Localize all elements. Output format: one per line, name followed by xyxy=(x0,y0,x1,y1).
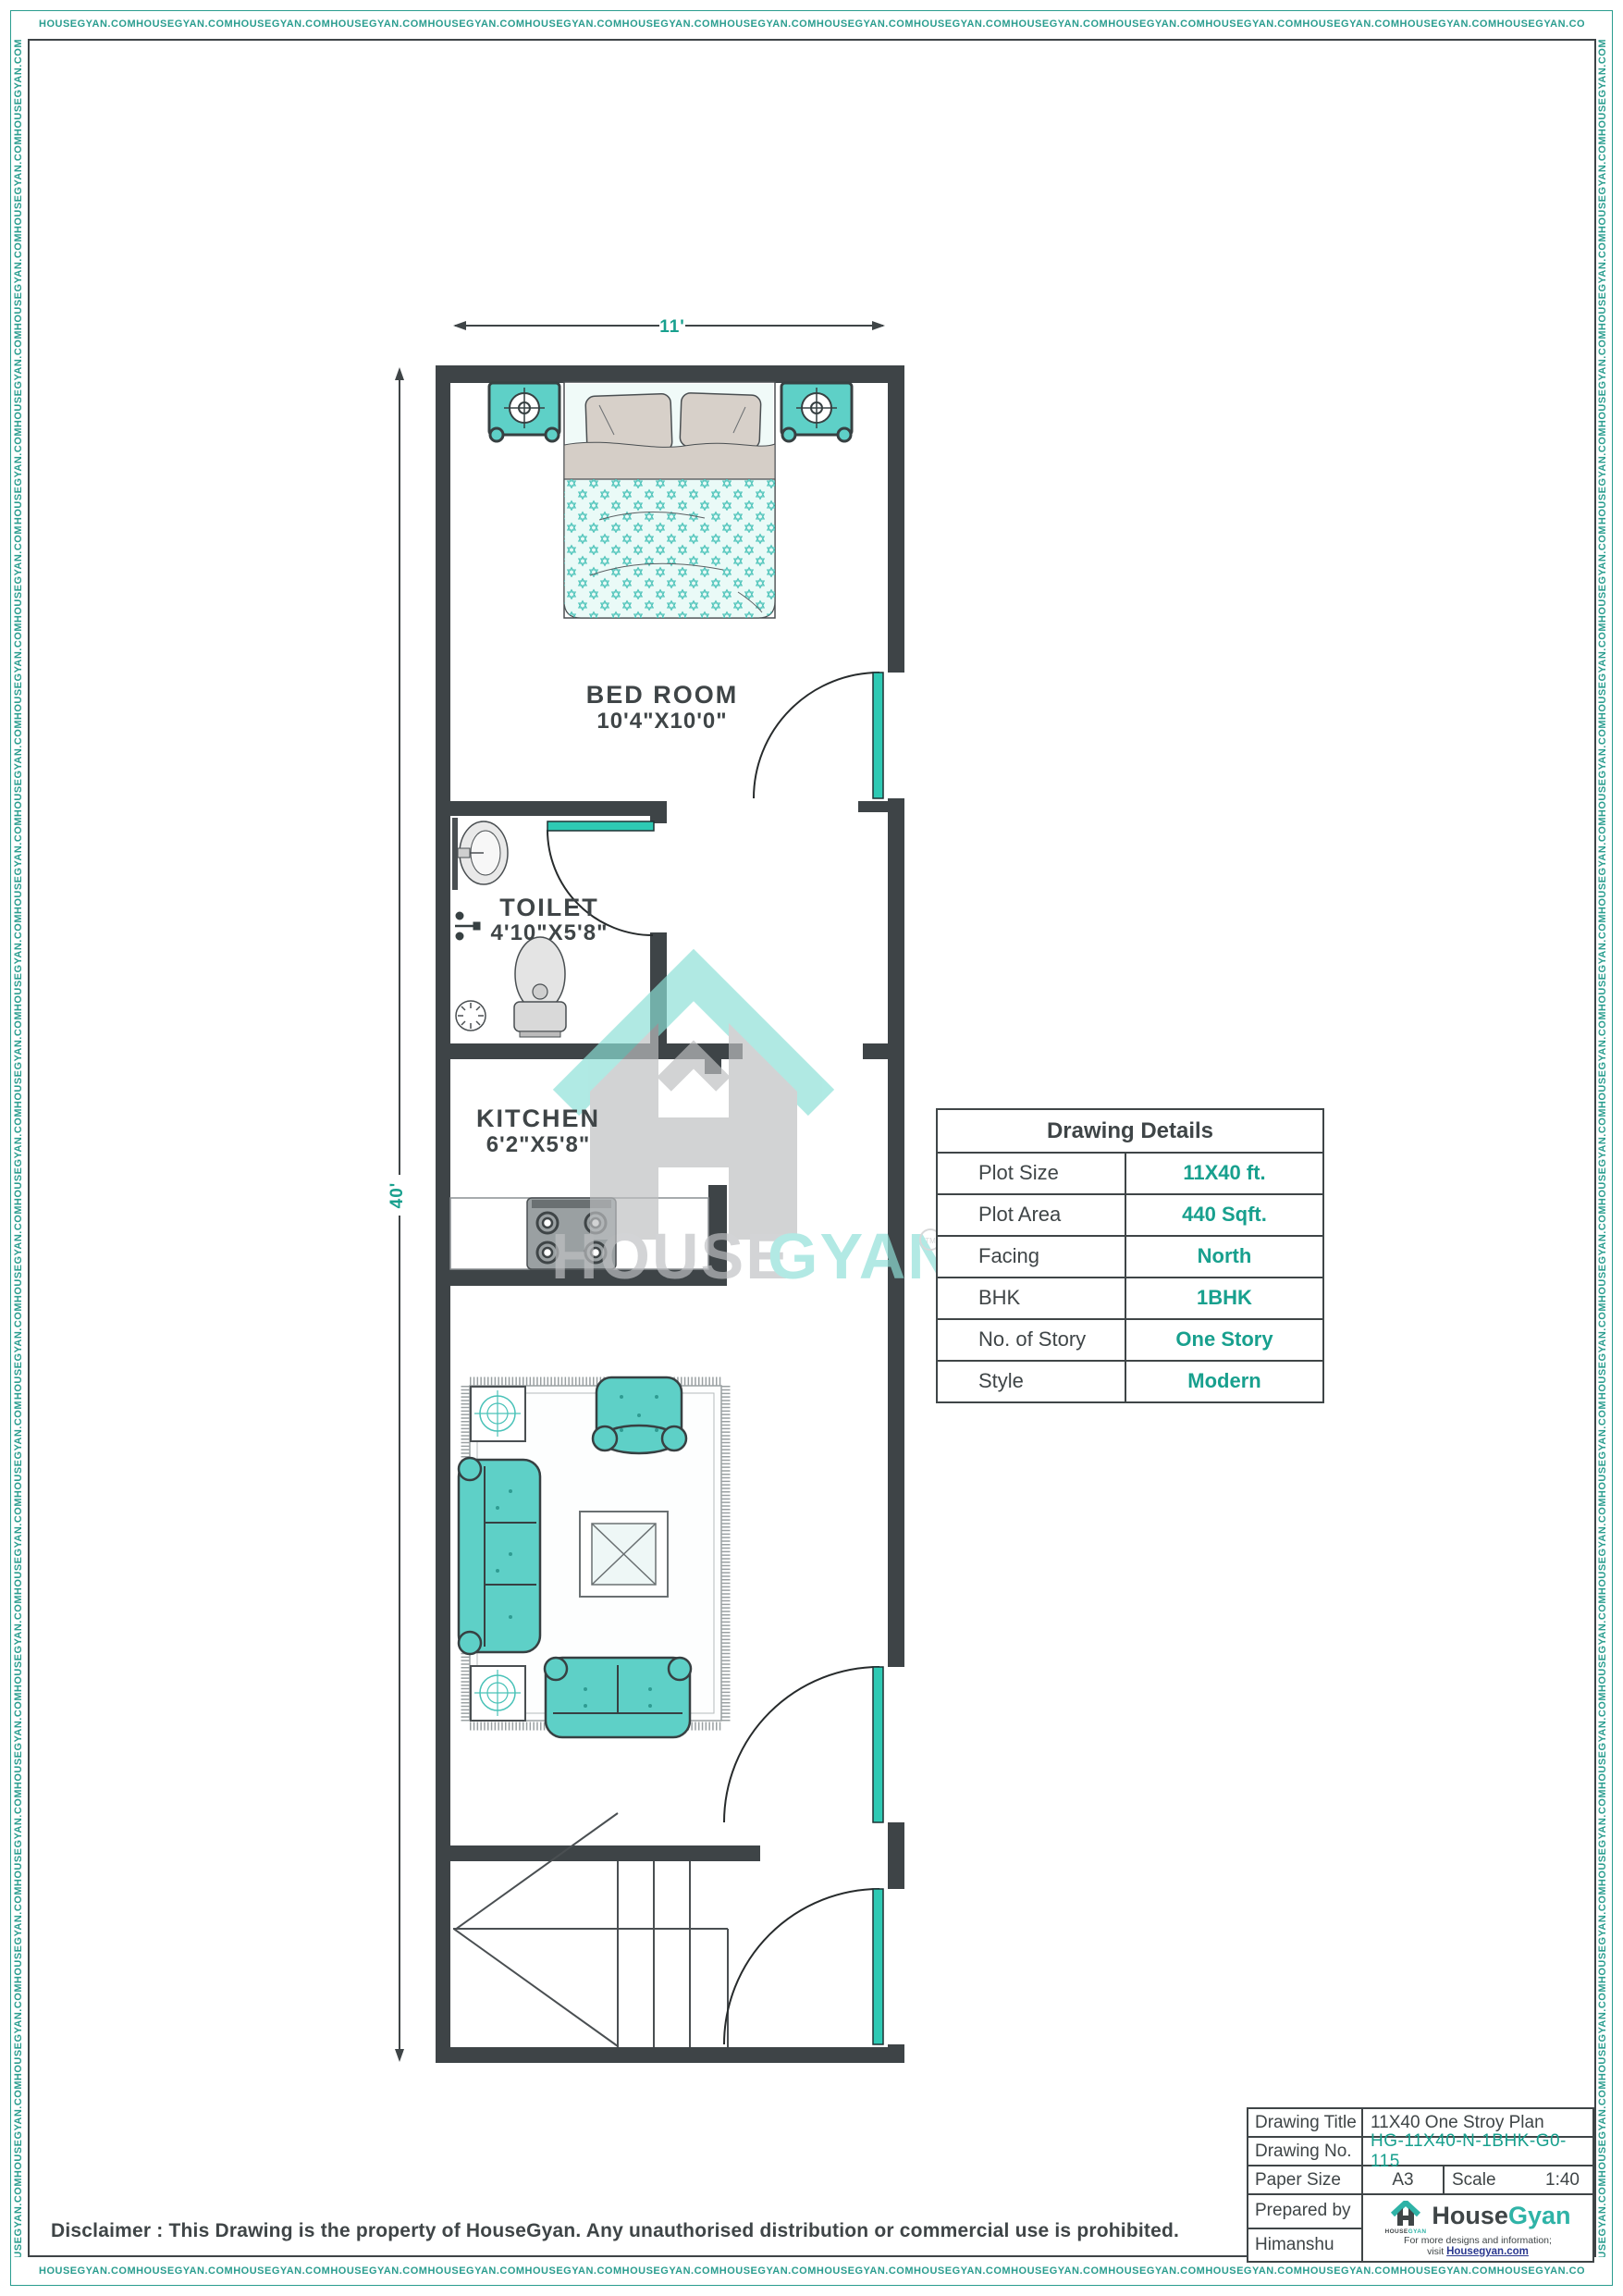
nightstand-right xyxy=(781,383,852,441)
details-label: Plot Size xyxy=(938,1154,1126,1193)
table-row: No. of Story One Story xyxy=(938,1320,1322,1362)
side-table-top xyxy=(471,1387,525,1441)
watermark-tm: TM xyxy=(925,1237,936,1245)
details-label: Plot Area xyxy=(938,1195,1126,1235)
sofa-three-seater xyxy=(459,1458,540,1654)
height-dimension-label: 40' xyxy=(387,1182,407,1209)
bedroom-size: 10'4"X10'0" xyxy=(596,709,727,734)
floor-plan: 11' 40' xyxy=(0,0,1623,2296)
title-block-row: Paper Size A3 Scale 1:40 xyxy=(1248,2166,1592,2195)
paper-size-value: A3 xyxy=(1363,2166,1445,2193)
double-bed xyxy=(564,382,775,618)
bedroom-label: BED ROOM xyxy=(586,681,739,709)
scale-label: Scale xyxy=(1452,2170,1496,2191)
details-label: Style xyxy=(938,1362,1126,1401)
details-label: BHK xyxy=(938,1278,1126,1318)
table-row: Style Modern xyxy=(938,1362,1322,1401)
logo-tagline: For more designs and information; xyxy=(1404,2235,1552,2246)
table-row: Plot Area 440 Sqft. xyxy=(938,1195,1322,1237)
kitchen-label: KITCHEN xyxy=(476,1105,600,1132)
watermark-house-text: HOUSE xyxy=(551,1220,791,1292)
details-value: 1BHK xyxy=(1126,1278,1322,1318)
toilet-wc xyxy=(514,937,566,1037)
watermark-gyan-text: GYAN xyxy=(768,1220,956,1292)
toilet-label: TOILET xyxy=(499,894,599,921)
nightstand-left xyxy=(489,383,559,441)
drawing-details-table: Drawing Details Plot Size 11X40 ft. Plot… xyxy=(936,1108,1324,1403)
details-value: 11X40 ft. xyxy=(1126,1154,1322,1193)
details-value: North xyxy=(1126,1237,1322,1277)
scale-value: 1:40 xyxy=(1545,2170,1580,2191)
title-block-row: Drawing No. HG-11X40-N-1BHK-G0-115 xyxy=(1248,2138,1592,2166)
visit-prefix: visit xyxy=(1427,2246,1446,2257)
details-title: Drawing Details xyxy=(938,1110,1322,1154)
armchair xyxy=(593,1377,686,1453)
prepared-by-value: Himanshu xyxy=(1248,2229,1361,2262)
drawing-title-label: Drawing Title xyxy=(1248,2109,1363,2136)
title-block: Drawing Title 11X40 One Stroy Plan Drawi… xyxy=(1247,2107,1594,2263)
table-row: Plot Size 11X40 ft. xyxy=(938,1154,1322,1195)
toilet-sink xyxy=(452,818,508,890)
drawing-no-value: HG-11X40-N-1BHK-G0-115 xyxy=(1363,2131,1592,2172)
logo-gyan-text: Gyan xyxy=(1508,2202,1571,2229)
details-label: Facing xyxy=(938,1237,1126,1277)
toilet-size: 4'10"X5'8" xyxy=(491,920,609,945)
floorplan-sheet: HOUSEGYAN.COMHOUSEGYAN.COMHOUSEGYAN.COMH… xyxy=(0,0,1623,2296)
details-value: Modern xyxy=(1126,1362,1322,1401)
side-table-bottom xyxy=(471,1666,525,1721)
housegyan-logo: HOUSEGYAN HouseGyan For more designs and… xyxy=(1363,2195,1592,2261)
kitchen-size: 6'2"X5'8" xyxy=(486,1132,591,1157)
disclaimer-text: Disclaimer : This Drawing is the propert… xyxy=(51,2220,1179,2242)
width-dimension-label: 11' xyxy=(659,317,685,337)
housegyan-link[interactable]: Housegyan.com xyxy=(1446,2246,1529,2257)
table-row: BHK 1BHK xyxy=(938,1278,1322,1320)
coffee-table xyxy=(580,1512,668,1597)
details-value: One Story xyxy=(1126,1320,1322,1360)
prepared-by-label: Prepared by xyxy=(1248,2195,1361,2229)
details-value: 440 Sqft. xyxy=(1126,1195,1322,1235)
logo-icon-gyan-text: GYAN xyxy=(1408,2228,1427,2235)
logo-icon-house-text: HOUSE xyxy=(1385,2228,1408,2235)
living-room-door xyxy=(724,1667,883,1822)
entrance-door xyxy=(724,1889,883,2044)
drawing-title-value: 11X40 One Stroy Plan xyxy=(1363,2113,1592,2133)
bedroom-door xyxy=(754,673,883,798)
shower-faucet xyxy=(455,912,480,940)
table-row: Facing North xyxy=(938,1237,1322,1278)
drawing-no-label: Drawing No. xyxy=(1248,2138,1363,2165)
logo-house-text: House xyxy=(1432,2202,1508,2229)
house-icon xyxy=(1390,2201,1421,2228)
details-label: No. of Story xyxy=(938,1320,1126,1360)
loveseat xyxy=(545,1658,691,1737)
paper-size-label: Paper Size xyxy=(1248,2166,1363,2193)
floor-drain xyxy=(456,1001,486,1031)
